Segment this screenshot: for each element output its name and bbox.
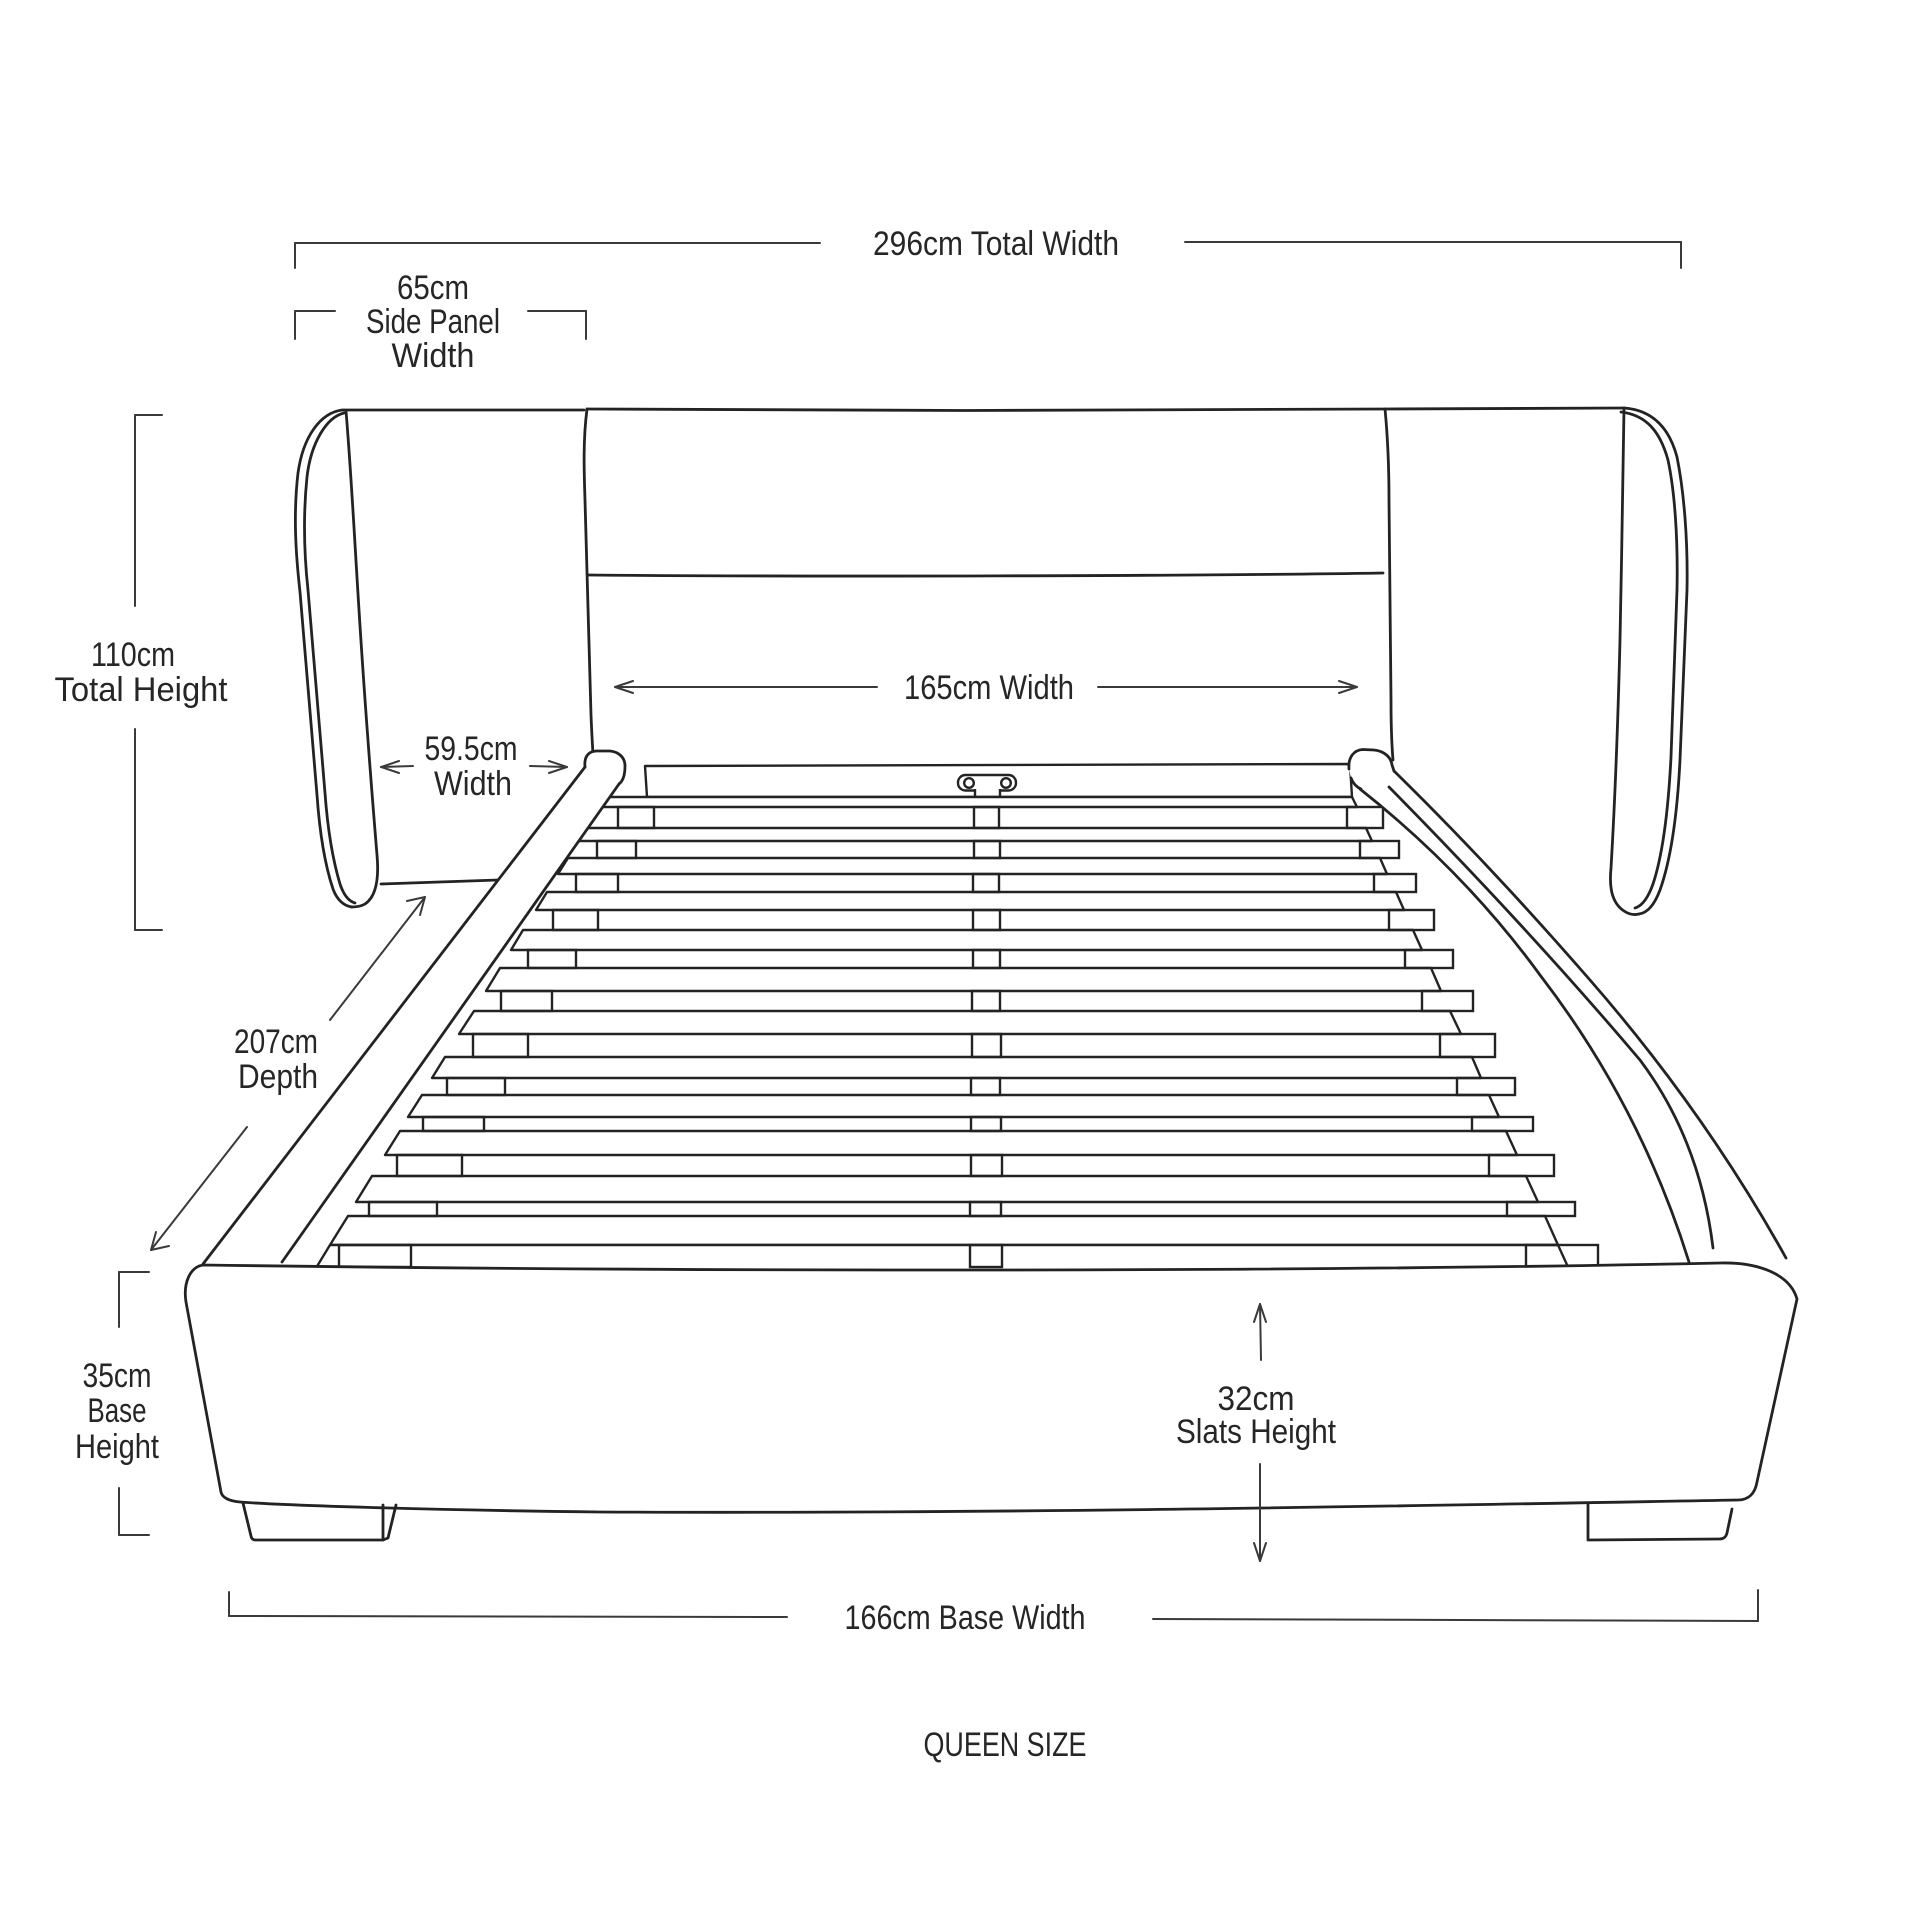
svg-text:59.5cm: 59.5cm [425,730,518,768]
svg-text:207cm: 207cm [234,1023,318,1061]
svg-text:Width: Width [434,765,512,803]
svg-text:Width: Width [392,337,475,375]
svg-text:110cm: 110cm [91,636,175,674]
svg-text:166cm Base Width: 166cm Base Width [845,1599,1086,1637]
svg-text:35cm: 35cm [83,1357,152,1395]
svg-text:165cm Width: 165cm Width [904,669,1074,707]
svg-text:Height: Height [75,1428,159,1466]
svg-text:QUEEN SIZE: QUEEN SIZE [924,1726,1087,1764]
svg-text:65cm: 65cm [397,269,469,307]
svg-text:Side Panel: Side Panel [366,303,500,341]
svg-text:Base: Base [88,1392,147,1430]
svg-text:Slats Height: Slats Height [1176,1413,1336,1451]
svg-text:Depth: Depth [238,1058,318,1096]
svg-text:Total Height: Total Height [55,671,229,709]
svg-text:296cm Total Width: 296cm Total Width [873,225,1119,263]
